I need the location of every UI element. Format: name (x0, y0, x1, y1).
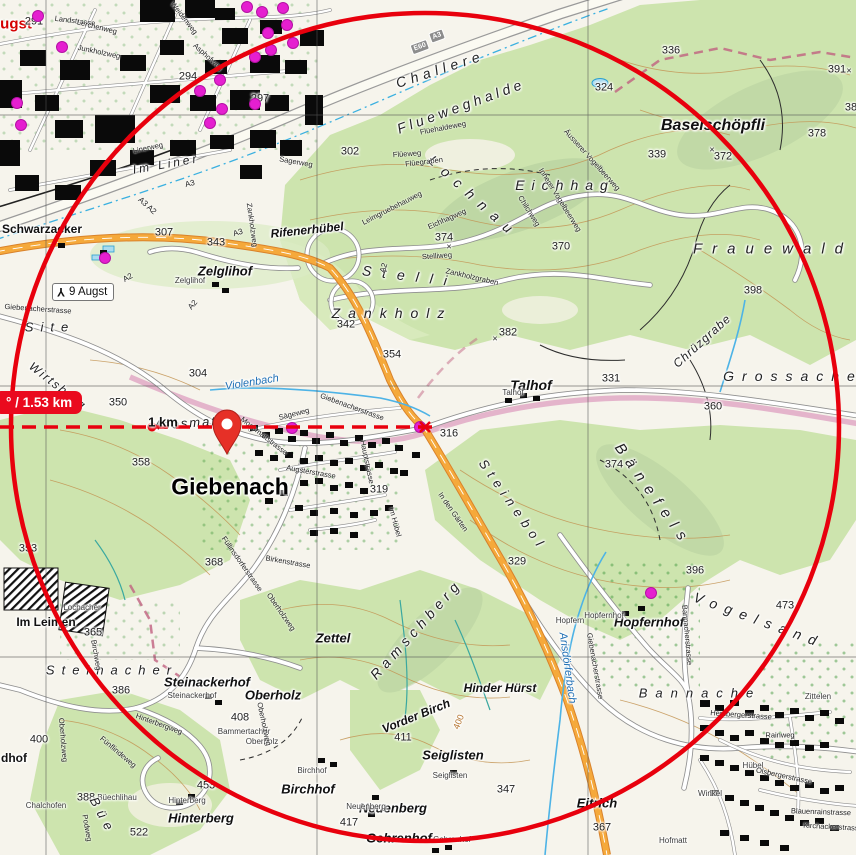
motorway-junction-icon: Y (57, 285, 65, 299)
map-canvas[interactable]: ugst291294297302304307316319324329331336… (0, 0, 856, 855)
junction-sign[interactable]: Y 9 Augst (52, 283, 114, 301)
measure-distance-label[interactable]: ° / 1.53 km (0, 391, 82, 414)
basemap-layer (0, 0, 856, 855)
junction-sign-label: 9 Augst (69, 286, 107, 298)
